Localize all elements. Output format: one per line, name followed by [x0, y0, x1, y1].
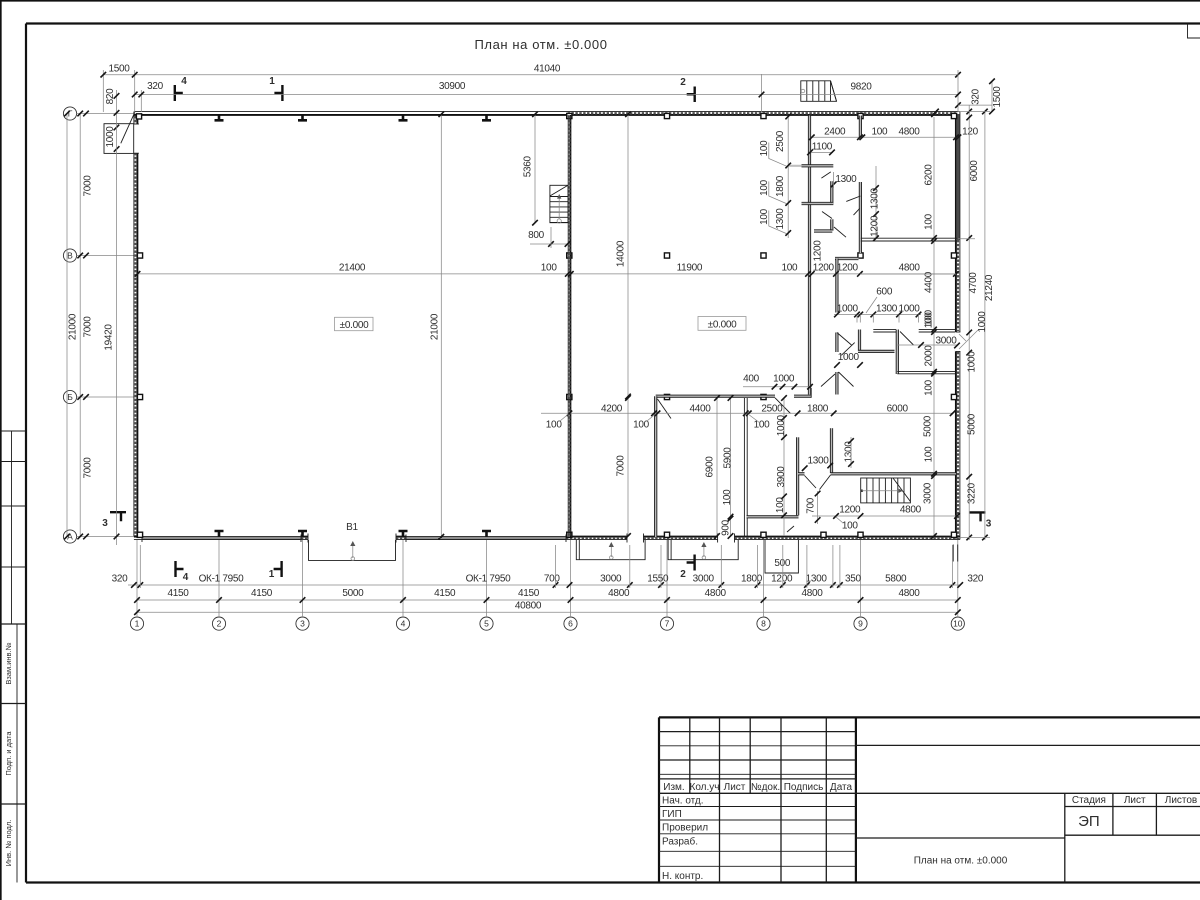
svg-text:5: 5 — [484, 619, 489, 629]
svg-text:4150: 4150 — [167, 588, 189, 599]
svg-text:Инв. № подл.: Инв. № подл. — [4, 820, 13, 867]
svg-text:100: 100 — [722, 489, 733, 506]
svg-text:1000: 1000 — [105, 126, 116, 148]
svg-text:1500: 1500 — [108, 64, 130, 75]
svg-text:Разраб.: Разраб. — [662, 836, 698, 848]
svg-text:1: 1 — [269, 569, 275, 580]
svg-text:6000: 6000 — [887, 403, 909, 414]
svg-text:3900: 3900 — [776, 466, 787, 488]
svg-text:1300: 1300 — [806, 574, 828, 585]
svg-text:100: 100 — [754, 419, 771, 430]
svg-text:100: 100 — [775, 497, 786, 514]
svg-text:320: 320 — [971, 88, 982, 105]
svg-text:Подп. и дата: Подп. и дата — [4, 731, 13, 776]
svg-text:1100: 1100 — [812, 141, 833, 152]
svg-text:3: 3 — [986, 519, 992, 530]
svg-text:100: 100 — [924, 446, 935, 463]
svg-text:5000: 5000 — [967, 413, 978, 435]
svg-text:1200: 1200 — [813, 262, 835, 273]
svg-text:7000: 7000 — [83, 457, 94, 479]
svg-text:4150: 4150 — [518, 588, 540, 599]
svg-text:1000: 1000 — [773, 374, 795, 385]
svg-text:4200: 4200 — [601, 403, 623, 414]
svg-text:№док.: №док. — [751, 782, 780, 793]
svg-text:Кол.уч: Кол.уч — [690, 782, 720, 793]
svg-text:Г: Г — [68, 109, 73, 119]
svg-text:4800: 4800 — [900, 505, 922, 516]
svg-text:1300: 1300 — [869, 187, 880, 209]
svg-text:1000: 1000 — [967, 351, 978, 373]
svg-text:ЭП: ЭП — [1078, 813, 1100, 830]
svg-text:4400: 4400 — [924, 271, 935, 293]
svg-text:30900: 30900 — [439, 81, 466, 92]
svg-text:1000: 1000 — [898, 303, 920, 314]
svg-text:7: 7 — [665, 619, 670, 629]
svg-text:5360: 5360 — [522, 155, 533, 177]
svg-text:Б: Б — [67, 392, 73, 402]
svg-text:100: 100 — [842, 521, 859, 532]
svg-text:400: 400 — [743, 374, 760, 385]
svg-text:41040: 41040 — [534, 64, 561, 75]
svg-text:Н. контр.: Н. контр. — [662, 871, 703, 882]
svg-text:320: 320 — [147, 81, 164, 92]
svg-text:1000: 1000 — [838, 352, 860, 363]
svg-text:1800: 1800 — [775, 175, 786, 197]
svg-text:1200: 1200 — [813, 240, 824, 262]
svg-text:3: 3 — [300, 619, 305, 629]
svg-text:100: 100 — [924, 312, 935, 329]
svg-text:4800: 4800 — [898, 588, 920, 599]
svg-text:100: 100 — [759, 179, 770, 196]
svg-text:1550: 1550 — [647, 574, 669, 585]
svg-text:21400: 21400 — [339, 262, 366, 273]
svg-text:ГИП: ГИП — [662, 809, 682, 820]
svg-text:100: 100 — [546, 419, 563, 430]
svg-text:19420: 19420 — [104, 324, 115, 351]
svg-text:350: 350 — [845, 574, 862, 585]
svg-text:4700: 4700 — [968, 272, 979, 294]
svg-text:2500: 2500 — [761, 403, 783, 414]
svg-text:6200: 6200 — [923, 164, 934, 186]
svg-text:5000: 5000 — [923, 415, 934, 437]
svg-text:100: 100 — [924, 379, 935, 396]
svg-text:2000: 2000 — [923, 345, 934, 367]
svg-text:6000: 6000 — [969, 160, 980, 182]
svg-text:2500: 2500 — [775, 130, 786, 152]
svg-text:1300: 1300 — [876, 303, 898, 314]
svg-text:ОК-1 7950: ОК-1 7950 — [466, 574, 512, 585]
svg-text:4800: 4800 — [705, 588, 727, 599]
svg-text:1: 1 — [135, 619, 140, 629]
svg-text:В: В — [67, 251, 73, 261]
svg-text:1300: 1300 — [807, 455, 829, 466]
svg-text:4: 4 — [183, 572, 189, 583]
svg-text:Проверил: Проверил — [662, 823, 708, 834]
svg-text:100: 100 — [924, 213, 935, 230]
svg-text:4: 4 — [401, 619, 406, 629]
svg-text:7000: 7000 — [83, 175, 94, 197]
svg-text:Дата: Дата — [830, 782, 853, 793]
svg-text:4400: 4400 — [689, 403, 711, 414]
svg-text:2400: 2400 — [824, 127, 846, 138]
svg-text:3: 3 — [102, 518, 108, 529]
svg-text:План на отм. ±0.000: План на отм. ±0.000 — [914, 856, 1008, 867]
svg-text:Подпись: Подпись — [784, 782, 824, 793]
svg-text:ОК-1 7950: ОК-1 7950 — [199, 574, 245, 585]
svg-text:21000: 21000 — [68, 313, 79, 340]
svg-text:700: 700 — [544, 574, 561, 585]
svg-text:600: 600 — [876, 287, 893, 298]
svg-text:1300: 1300 — [775, 208, 786, 230]
svg-text:1500: 1500 — [992, 86, 1003, 108]
svg-text:±0.000: ±0.000 — [340, 320, 369, 331]
svg-text:±0.000: ±0.000 — [708, 319, 737, 330]
svg-text:В1: В1 — [346, 522, 358, 533]
svg-text:1000: 1000 — [837, 303, 859, 314]
svg-text:320: 320 — [967, 574, 984, 585]
svg-text:40800: 40800 — [515, 601, 542, 612]
svg-text:820: 820 — [105, 88, 116, 105]
svg-text:1: 1 — [269, 76, 275, 87]
svg-text:900: 900 — [721, 519, 732, 536]
svg-text:3000: 3000 — [693, 574, 715, 585]
svg-text:6900: 6900 — [705, 456, 716, 478]
svg-text:10: 10 — [953, 619, 963, 629]
svg-text:1200: 1200 — [771, 574, 793, 585]
svg-text:5000: 5000 — [342, 588, 364, 599]
svg-text:1000: 1000 — [977, 311, 988, 333]
svg-text:План на отм. ±0.000: План на отм. ±0.000 — [474, 37, 607, 52]
svg-text:4150: 4150 — [251, 588, 273, 599]
svg-text:1000: 1000 — [776, 414, 787, 436]
svg-text:700: 700 — [805, 497, 816, 514]
svg-text:3220: 3220 — [967, 482, 978, 504]
svg-text:4800: 4800 — [899, 262, 921, 273]
svg-text:9: 9 — [858, 619, 863, 629]
svg-text:800: 800 — [528, 230, 545, 241]
svg-text:5800: 5800 — [885, 574, 907, 585]
svg-text:7000: 7000 — [616, 455, 627, 477]
svg-text:120: 120 — [962, 127, 979, 138]
svg-text:1200: 1200 — [837, 262, 859, 273]
svg-text:100: 100 — [541, 263, 558, 274]
svg-text:Листов: Листов — [1165, 795, 1198, 806]
svg-text:4800: 4800 — [608, 588, 630, 599]
svg-text:Стадия: Стадия — [1072, 795, 1106, 806]
svg-text:Изм.: Изм. — [663, 782, 684, 793]
svg-text:100: 100 — [782, 263, 799, 274]
svg-text:4800: 4800 — [801, 588, 823, 599]
svg-text:1200: 1200 — [869, 215, 880, 237]
svg-text:7000: 7000 — [83, 316, 94, 338]
svg-text:Лист: Лист — [724, 782, 746, 793]
svg-text:1800: 1800 — [807, 403, 829, 414]
svg-text:100: 100 — [872, 127, 889, 138]
svg-text:2: 2 — [680, 569, 686, 580]
svg-text:3000: 3000 — [600, 574, 622, 585]
svg-text:6: 6 — [568, 619, 573, 629]
svg-text:9820: 9820 — [850, 82, 872, 93]
svg-text:14000: 14000 — [616, 240, 627, 267]
svg-text:8: 8 — [761, 619, 766, 629]
svg-text:Взам.инв.№: Взам.инв.№ — [4, 642, 13, 684]
svg-text:4800: 4800 — [898, 127, 920, 138]
svg-text:2: 2 — [680, 77, 686, 88]
svg-text:320: 320 — [112, 574, 129, 585]
svg-text:Лист: Лист — [1124, 795, 1146, 806]
svg-text:5900: 5900 — [723, 447, 734, 469]
svg-text:4150: 4150 — [434, 588, 456, 599]
svg-text:100: 100 — [759, 140, 770, 157]
svg-text:100: 100 — [759, 208, 770, 225]
svg-text:4: 4 — [181, 76, 187, 87]
svg-text:1300: 1300 — [835, 174, 857, 185]
svg-text:3000: 3000 — [923, 482, 934, 504]
svg-text:1800: 1800 — [741, 574, 763, 585]
svg-text:2: 2 — [217, 619, 222, 629]
svg-text:11900: 11900 — [677, 262, 703, 273]
svg-text:1200: 1200 — [839, 505, 861, 516]
svg-text:21240: 21240 — [984, 274, 995, 301]
svg-text:Нач. отд.: Нач. отд. — [662, 795, 704, 806]
svg-text:21000: 21000 — [430, 313, 441, 340]
